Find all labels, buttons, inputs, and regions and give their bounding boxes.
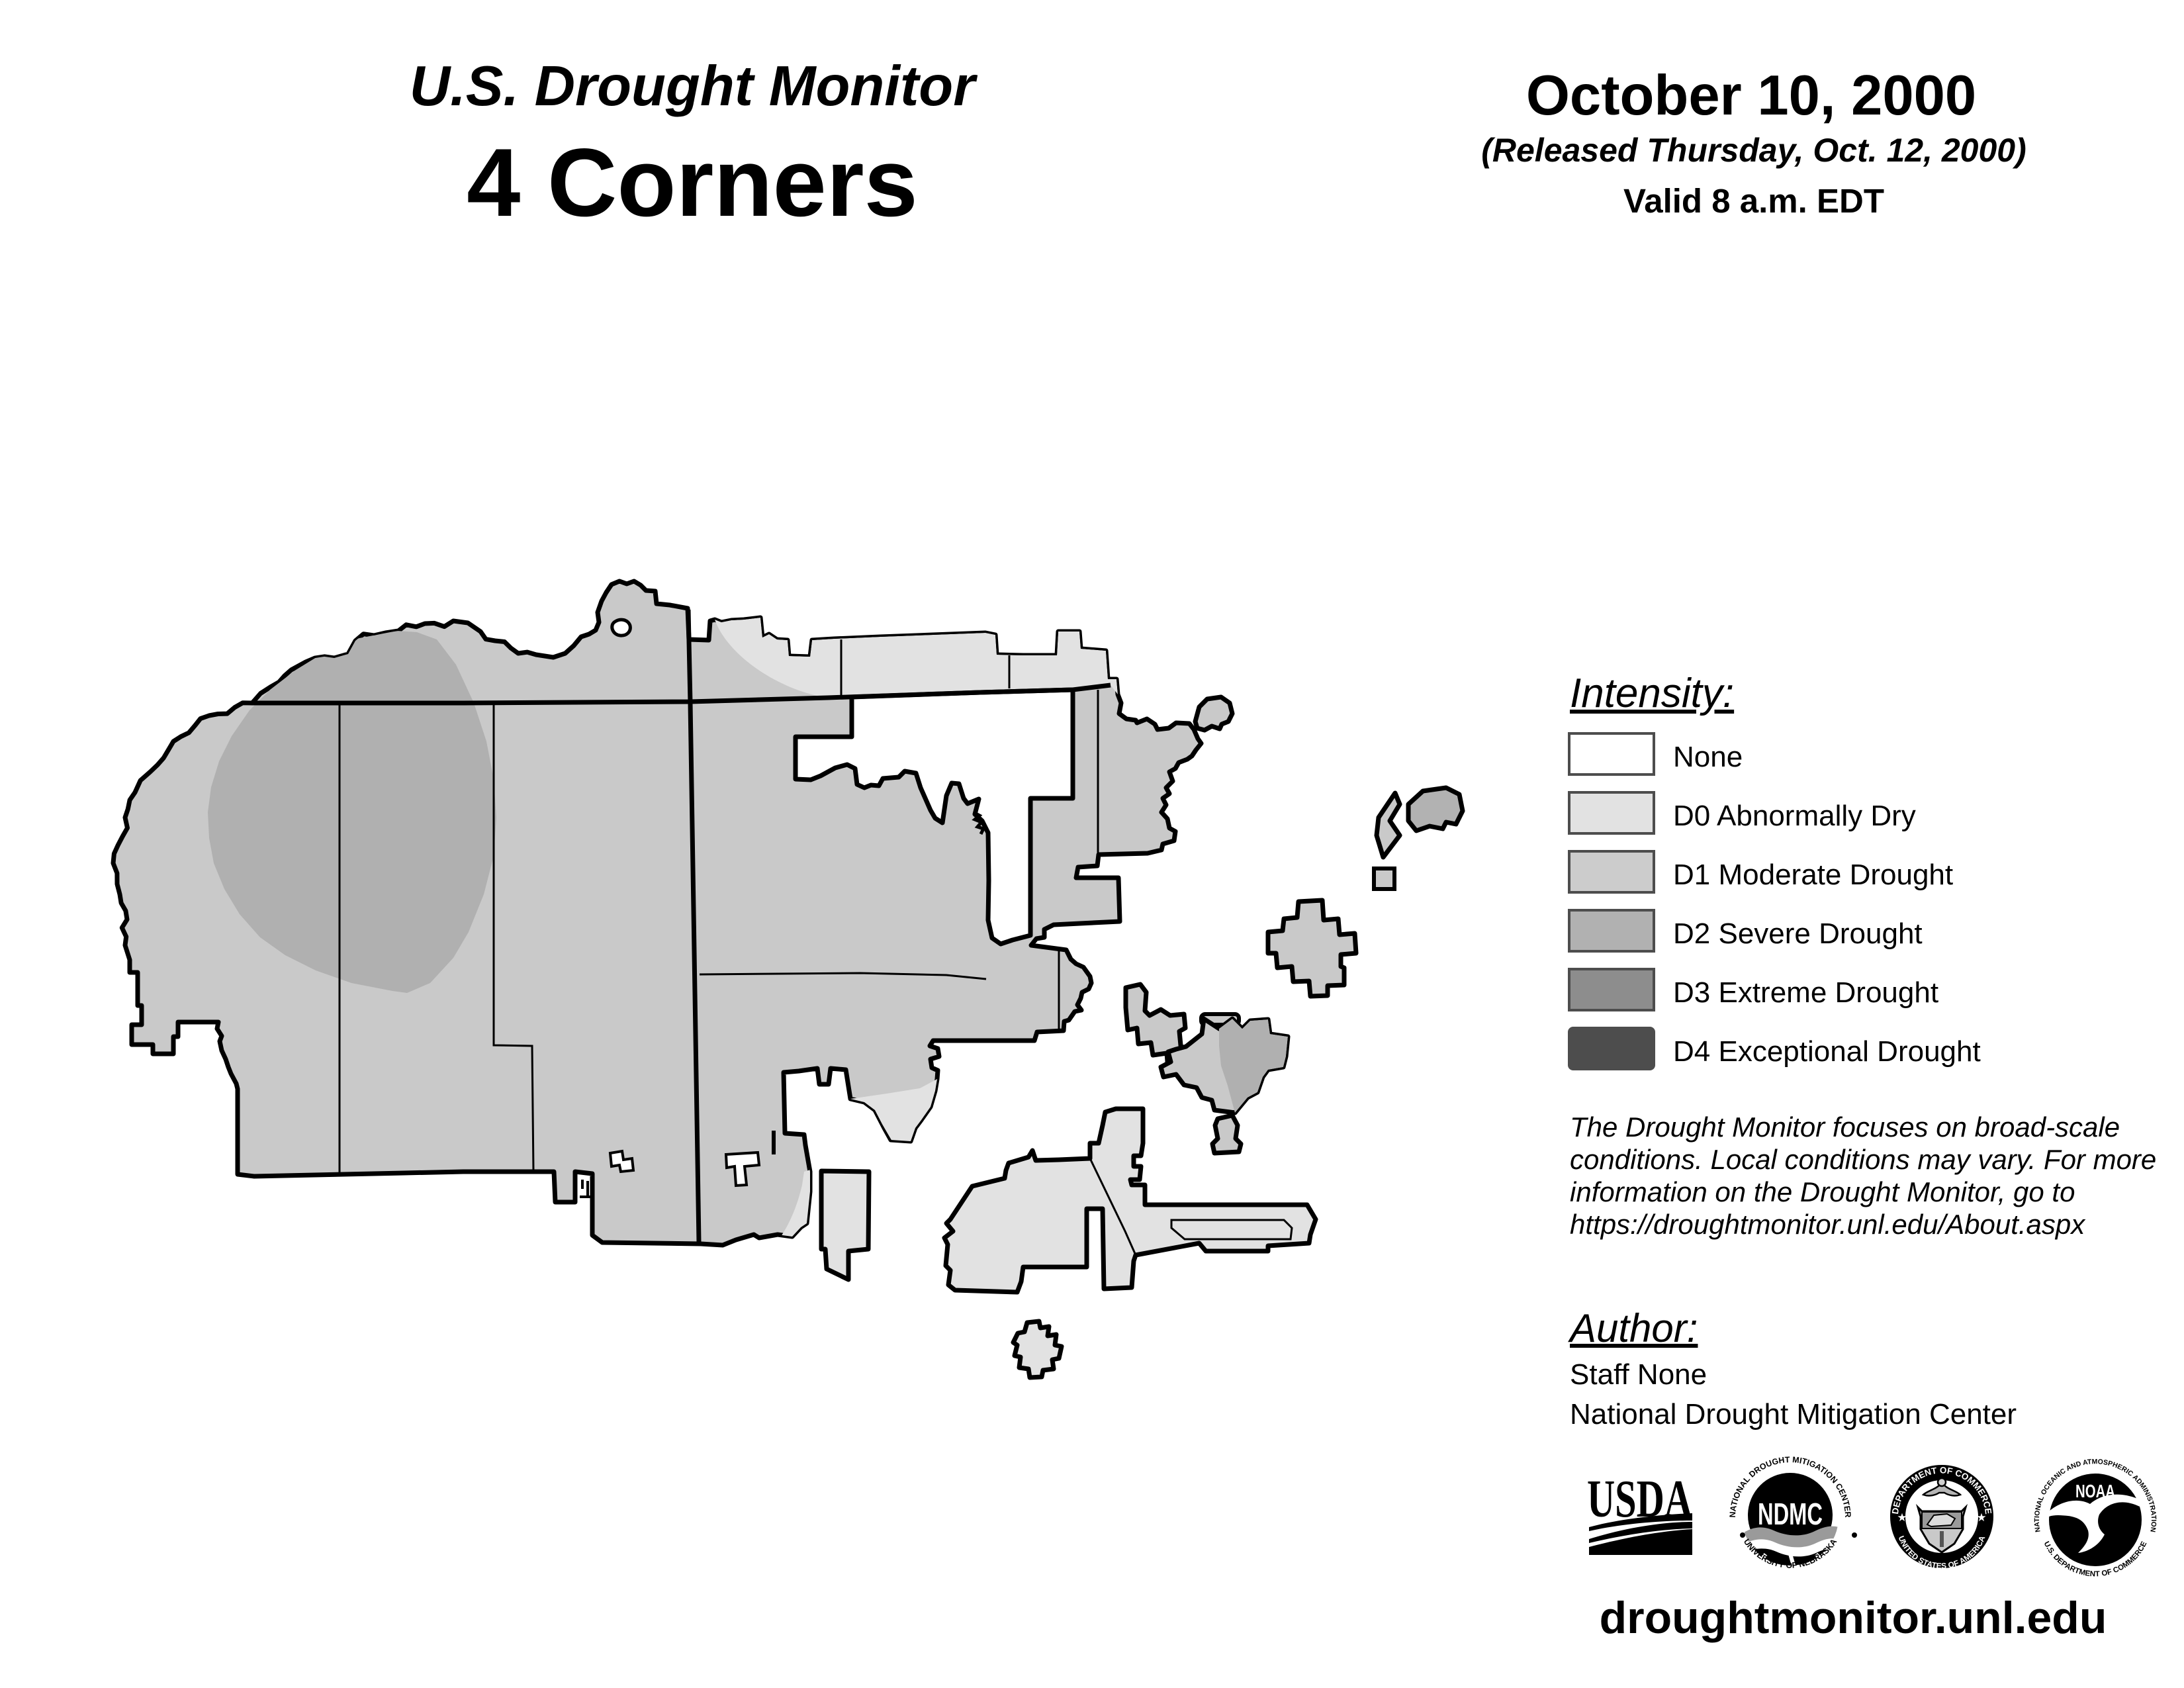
svg-text:NDMC: NDMC [1758, 1497, 1823, 1531]
svg-text:★: ★ [1976, 1511, 1986, 1524]
svg-text:★: ★ [1897, 1511, 1907, 1524]
svg-text:NOAA: NOAA [2075, 1481, 2115, 1501]
